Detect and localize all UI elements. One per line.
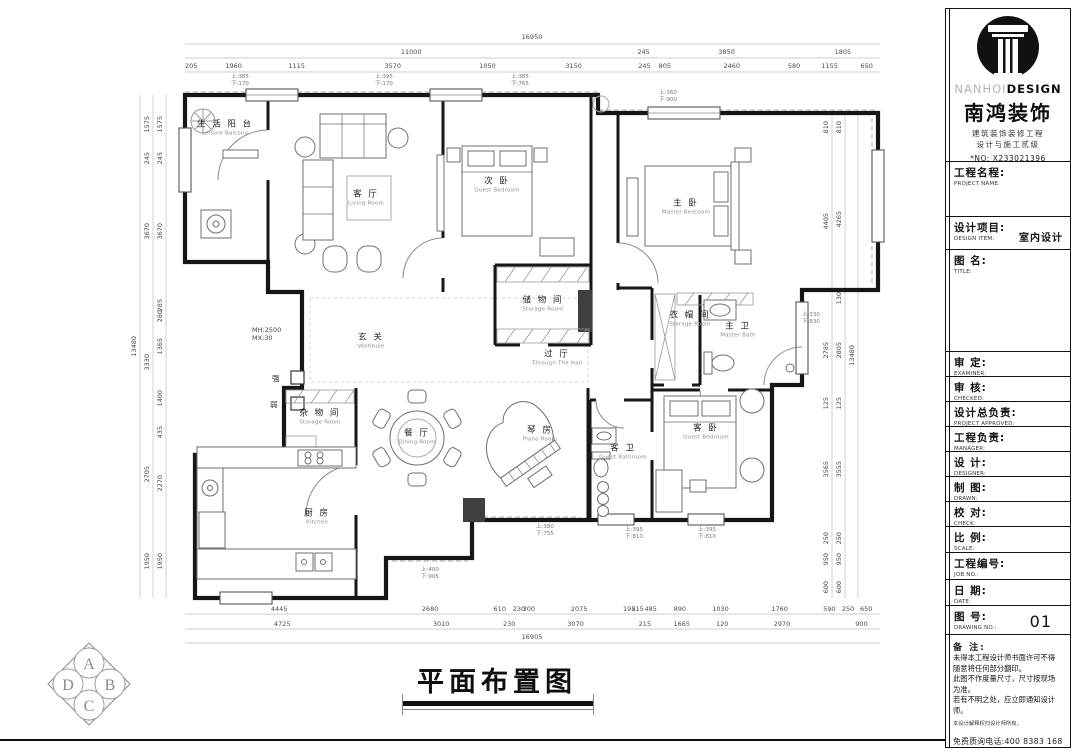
remark-copyright: 本设计解释权归设计师所有。	[953, 719, 1065, 727]
dim: 1665	[648, 619, 716, 629]
electric-boxes	[291, 371, 304, 410]
dim: 4405	[822, 213, 830, 230]
dim: 1960	[193, 61, 273, 71]
dim: 1365	[156, 338, 164, 355]
sill-annotation: 上:380下:755	[536, 524, 554, 538]
dim: 4445	[185, 604, 373, 614]
index-compass: A B C D	[38, 633, 142, 737]
field-drawn: 制 图: DRAWN:	[946, 477, 1070, 502]
dim: 810	[822, 121, 830, 133]
dim-col-right-outer: 810 4265 130 2805 125 3555 250 950 600	[833, 113, 844, 598]
dim: 250	[842, 604, 853, 614]
dim: 13480	[848, 345, 856, 366]
sill-annotation: 上:395下:170	[375, 74, 393, 88]
dim: 3850	[647, 47, 805, 57]
dim: 610	[487, 604, 513, 614]
compass-letter-b: B	[105, 677, 116, 694]
room-label-guest-bedroom-north: 次 卧Guest Bedroom	[474, 175, 519, 194]
remark-line: 为准。	[953, 685, 1065, 696]
compass-letter-d: D	[62, 677, 74, 694]
dim-bottom-total: 16905	[522, 633, 543, 641]
room-label-dining-room: 餐 厅Dining Room	[398, 427, 435, 446]
room-label-kitchen: 厨 房Kitchen	[304, 507, 330, 526]
dim: 250	[835, 532, 843, 544]
dim: 11000	[185, 47, 637, 57]
dim: 3570	[320, 61, 466, 71]
dim: 2705	[143, 466, 151, 483]
dim: 600	[822, 581, 830, 593]
dim: 2805	[835, 342, 843, 359]
dim: 810	[835, 121, 843, 133]
room-label-vestibule: 玄 关Vestibule	[358, 331, 385, 350]
remark-line: 此图不作度量尺寸，尺寸按现场	[953, 674, 1065, 685]
room-label-through-hall: 过 厅Through The Hall	[532, 348, 582, 367]
dim: 580	[782, 61, 806, 71]
dim: 250	[822, 532, 830, 544]
dim: 950	[835, 553, 843, 565]
title-underline-thin	[402, 709, 594, 710]
dim: 1575	[156, 116, 164, 133]
field-examiner: 审 定: EXAMINER:	[946, 352, 1070, 377]
room-label-cloak-room: 衣 帽 间Storage Room	[669, 309, 710, 328]
sill-annotation: 上:395下:810	[625, 527, 643, 541]
field-design-item: 设计项目: DESIGN ITEM: 室内设计	[946, 217, 1070, 250]
dim-row-top-3: 205 1960 1115 3570 1050 3150 245 805 246…	[185, 61, 880, 71]
dim: 230	[503, 619, 512, 629]
dim: 590	[817, 604, 842, 614]
room-label-storage-room: 储 物 间Storage Room	[522, 294, 563, 313]
service-phone: 免费质询电话:400 8383 168	[953, 736, 1065, 747]
dim: 13480	[130, 336, 138, 357]
guest-bedroom-south-furniture	[656, 389, 764, 512]
dim: 650	[853, 61, 880, 71]
dim: 435	[156, 426, 164, 438]
remarks-section: 备 注: 未得本工程设计师书面许可不得 随意将任何部分翻印。 此图不作度量尺寸，…	[946, 635, 1070, 747]
dim: 485	[640, 604, 661, 614]
field-title: 图 名: TITLE:	[946, 250, 1070, 352]
dim: 650	[852, 604, 880, 614]
sill-annotation: 上:385下:765	[511, 74, 529, 88]
dim: 245	[156, 152, 164, 164]
room-label-master-bedroom: 主 卧Master Bedroom	[662, 197, 710, 216]
field-manager: 工程负责: MANAGER:	[946, 427, 1070, 452]
dim-row-top-2: 11000 245 3850 1805	[185, 47, 880, 57]
dim: 125	[835, 397, 843, 409]
dim-col-right-inner: 810 4405 2785 125 3565 250 950 600	[820, 113, 831, 598]
drawing-sheet: 16950 11000 245 3850 1805 205 1960 1115 …	[0, 0, 1080, 756]
title-block: NANHOIDESIGN 南鸿装饰 建筑装饰装修工程 设计与施工贰级 *NO: …	[945, 8, 1071, 748]
sill-annotation: 上:330下:830	[802, 312, 820, 326]
dim: 1400	[156, 390, 164, 407]
cert-number: *NO: X233021396	[946, 154, 1070, 162]
field-checked: 审 核: CHECKED:	[946, 377, 1070, 402]
dim: 245	[638, 61, 648, 71]
dim: 600	[835, 581, 843, 593]
dim: 2270	[156, 475, 164, 492]
sheet-bottom-border	[0, 739, 947, 741]
field-scale: 比 例: SCALE:	[946, 527, 1070, 553]
dim: 1115	[274, 61, 320, 71]
dim: 3670	[143, 223, 151, 240]
dim: 1155	[806, 61, 853, 71]
dim: 130	[835, 292, 843, 304]
dim: 205	[185, 61, 193, 71]
room-label-utility-room: 杂 物 间Storage Room	[299, 407, 340, 426]
title-underline-thick	[402, 701, 594, 706]
dim: 1050	[466, 61, 509, 71]
sill-annotation: 上:395下:810	[698, 527, 716, 541]
room-label-master-bath: 主 卫Master Bath	[720, 320, 756, 339]
cert-line-1: 建筑装饰装修工程	[946, 128, 1070, 139]
remark-line: 若有不明之处，应立即通知设计	[953, 695, 1065, 706]
shaft-block	[578, 290, 592, 332]
room-label-guest-bathroom: 客 卫Guest Bathroom	[599, 442, 647, 461]
remark-line: 未得本工程设计师书面许可不得	[953, 653, 1065, 664]
field-job-no: 工程编号: JOB NO.:	[946, 553, 1070, 580]
field-project-name: 工程名程: PROJECT NAME:	[946, 162, 1070, 217]
drawing-number-value: 01	[1030, 612, 1052, 631]
dim: 195	[623, 604, 631, 614]
dim: 245	[637, 47, 647, 57]
room-label-guest-bedroom-south: 客 卧Guest Bedroom	[683, 422, 728, 441]
dim: 1950	[143, 553, 151, 570]
sill-annotation: 上:385下:170	[231, 74, 249, 88]
guest-bedroom-north-furniture	[447, 146, 574, 256]
dim: 2680	[373, 604, 487, 614]
dim: 890	[661, 604, 699, 614]
dim-col-left-outer: 1575 245 3670 3330 2705 1950	[141, 95, 152, 598]
dim: 3010	[379, 619, 503, 629]
dim: 3330	[143, 354, 151, 371]
dim: 1575	[143, 116, 151, 133]
dim: 2460	[681, 61, 782, 71]
strong-electric-label: 强	[272, 373, 280, 384]
pillar-block	[463, 498, 485, 522]
drawing-title: 平面布置图	[417, 660, 577, 699]
company-logo-icon	[946, 9, 1070, 81]
compass-letter-c: C	[84, 698, 95, 715]
sill-annotation: 上:360下:900	[659, 90, 677, 104]
dim: 2785	[822, 342, 830, 359]
company-name: 南鸿装饰	[946, 97, 1070, 126]
compass-letter-a: A	[83, 656, 95, 673]
company-logo-section: NANHOIDESIGN 南鸿装饰 建筑装饰装修工程 设计与施工贰级 *NO: …	[946, 9, 1070, 162]
dim: 1805	[806, 47, 880, 57]
dim: 300	[522, 604, 535, 614]
dim-col-right-total: 13480	[846, 113, 857, 598]
dim: 1950	[156, 553, 164, 570]
dim: 4265	[835, 211, 843, 228]
title-tick-right	[593, 694, 594, 715]
dim-top-total: 16950	[522, 33, 543, 41]
dim: 280	[156, 310, 164, 322]
dim: 950	[822, 553, 830, 565]
dim-col-left-total: 13480	[128, 95, 139, 598]
dim: 2970	[721, 619, 843, 629]
dim: 3565	[822, 461, 830, 478]
brand-name: NANHOIDESIGN	[946, 82, 1070, 96]
title-tick-left	[402, 694, 403, 715]
dim: 900	[843, 619, 880, 629]
wall-height-note: MH:2500MX:30	[252, 326, 281, 342]
field-designer: 设 计: DESIGNER:	[946, 452, 1070, 477]
field-project-approved: 设计总负责: PROJECT APPROVED:	[946, 402, 1070, 427]
remark-line: 师。	[953, 706, 1065, 717]
dim-row-bottom-2: 4725 3010 230 3070 215 1665 120 2970 900	[185, 619, 880, 629]
dim-row-bottom-1: 4445 2680 610 230 300 2075 195 215 485 8…	[185, 604, 880, 614]
dim: 805	[648, 61, 681, 71]
dim: 215	[631, 604, 640, 614]
dim: 125	[822, 397, 830, 409]
dim: 3555	[835, 461, 843, 478]
field-drawing-no: 图 号: DRAWING NO.: 01	[946, 606, 1070, 635]
dim: 4725	[185, 619, 379, 629]
room-label-leisure-balcony: 生 活 阳 台Leisure Balcony	[197, 118, 253, 137]
cert-line-2: 设计与施工贰级	[946, 139, 1070, 150]
field-check: 校 对: CHECK:	[946, 502, 1070, 527]
dim-col-left-inner: 1575 245 3670 285 280 1365 1400 435 2270…	[154, 95, 165, 598]
design-item-value: 室内设计	[1019, 229, 1063, 244]
dim: 3150	[509, 61, 638, 71]
dim: 3670	[156, 223, 164, 240]
dim: 215	[639, 619, 648, 629]
remark-line: 随意将任何部分翻印。	[953, 664, 1065, 675]
room-label-living-room: 客 厅Living Room	[348, 188, 384, 207]
sill-annotation: 上:400下:905	[421, 567, 439, 581]
room-label-piano-room: 琴 房Piano Room	[523, 424, 557, 443]
grand-piano	[469, 393, 575, 501]
dim: 245	[143, 152, 151, 164]
dim: 1760	[742, 604, 817, 614]
weak-electric-label: 弱	[270, 399, 278, 410]
dim: 230	[513, 604, 523, 614]
dim: 3070	[512, 619, 638, 629]
field-date: 日 期: DATE:	[946, 580, 1070, 606]
kitchen-fixtures	[197, 447, 356, 579]
dim: 2075	[535, 604, 623, 614]
dim: 1030	[699, 604, 743, 614]
